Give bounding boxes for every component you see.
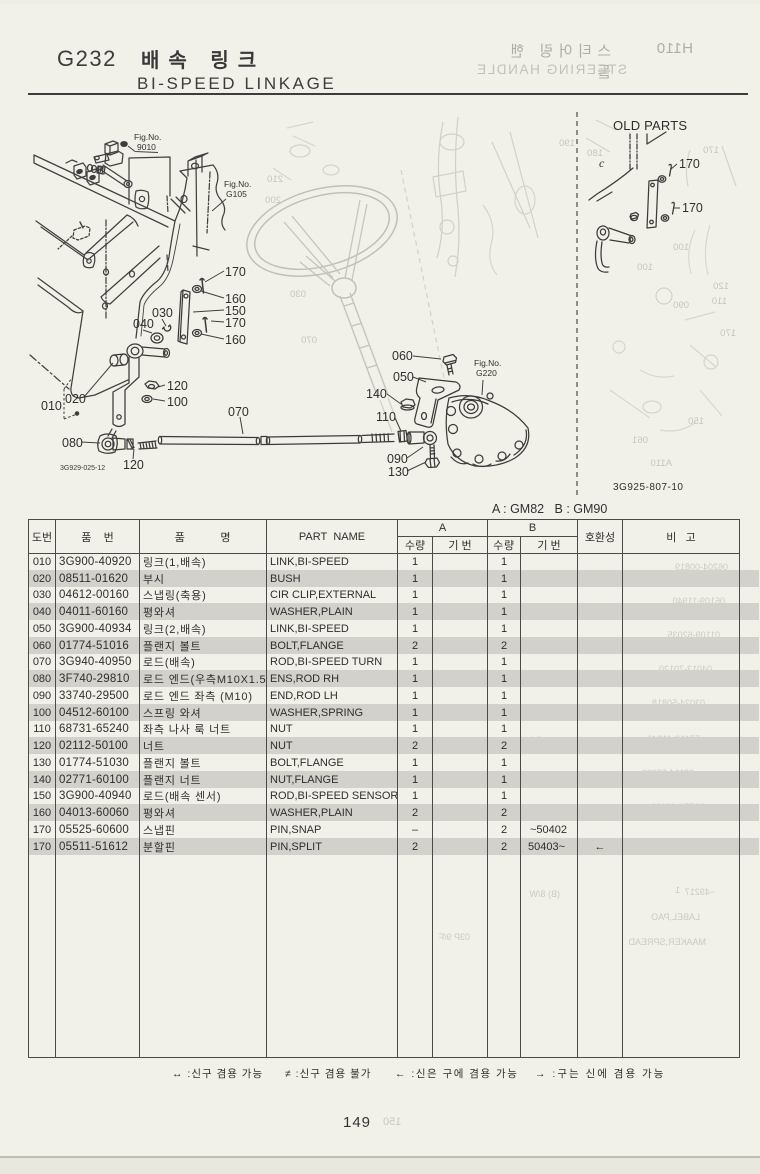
svg-text:Fig.No.: Fig.No. xyxy=(224,179,251,189)
svg-text:G220: G220 xyxy=(476,368,497,378)
svg-text:170: 170 xyxy=(682,201,703,215)
svg-text:170: 170 xyxy=(225,316,246,330)
svg-text:070: 070 xyxy=(301,335,317,346)
svg-text:170: 170 xyxy=(225,265,246,279)
svg-text:100: 100 xyxy=(637,262,653,273)
svg-text:090: 090 xyxy=(387,452,408,466)
svg-text:080: 080 xyxy=(62,436,83,450)
svg-text:100: 100 xyxy=(167,395,188,409)
svg-text:170: 170 xyxy=(679,157,700,171)
svg-text:3G925-807-10: 3G925-807-10 xyxy=(613,482,684,493)
svg-text:9010: 9010 xyxy=(137,142,156,152)
svg-text:100: 100 xyxy=(673,242,689,253)
svg-text:130: 130 xyxy=(388,465,409,479)
svg-text:040: 040 xyxy=(133,317,154,331)
svg-text:010: 010 xyxy=(41,399,62,413)
svg-text:210: 210 xyxy=(267,174,283,185)
svg-text:150: 150 xyxy=(688,416,704,427)
svg-text:3G929-025-12: 3G929-025-12 xyxy=(60,465,105,472)
svg-text:110: 110 xyxy=(376,410,396,424)
svg-text:170: 170 xyxy=(720,328,736,339)
svg-text:200: 200 xyxy=(265,195,281,206)
svg-text:060: 060 xyxy=(392,349,413,363)
svg-text:120: 120 xyxy=(123,458,144,472)
svg-text:Fig.No.: Fig.No. xyxy=(474,358,501,368)
svg-text:Fig.No.: Fig.No. xyxy=(134,132,161,142)
svg-text:190: 190 xyxy=(559,138,575,149)
svg-text:061: 061 xyxy=(632,435,648,446)
svg-text:030: 030 xyxy=(152,306,173,320)
svg-text:110: 110 xyxy=(712,296,727,307)
svg-text:070: 070 xyxy=(228,405,249,419)
svg-text:A110: A110 xyxy=(651,458,672,469)
svg-text:120: 120 xyxy=(167,379,188,393)
svg-text:140: 140 xyxy=(366,387,387,401)
svg-text:030: 030 xyxy=(290,289,306,300)
svg-text:160: 160 xyxy=(225,333,246,347)
svg-text:050: 050 xyxy=(393,370,414,384)
svg-text:c: c xyxy=(599,156,605,170)
svg-text:G105: G105 xyxy=(226,189,247,199)
svg-text:170: 170 xyxy=(703,145,719,156)
svg-text:090: 090 xyxy=(673,300,689,311)
svg-text:020: 020 xyxy=(65,392,86,406)
svg-text:OLD PARTS: OLD PARTS xyxy=(613,118,687,133)
svg-text:120: 120 xyxy=(713,281,729,292)
